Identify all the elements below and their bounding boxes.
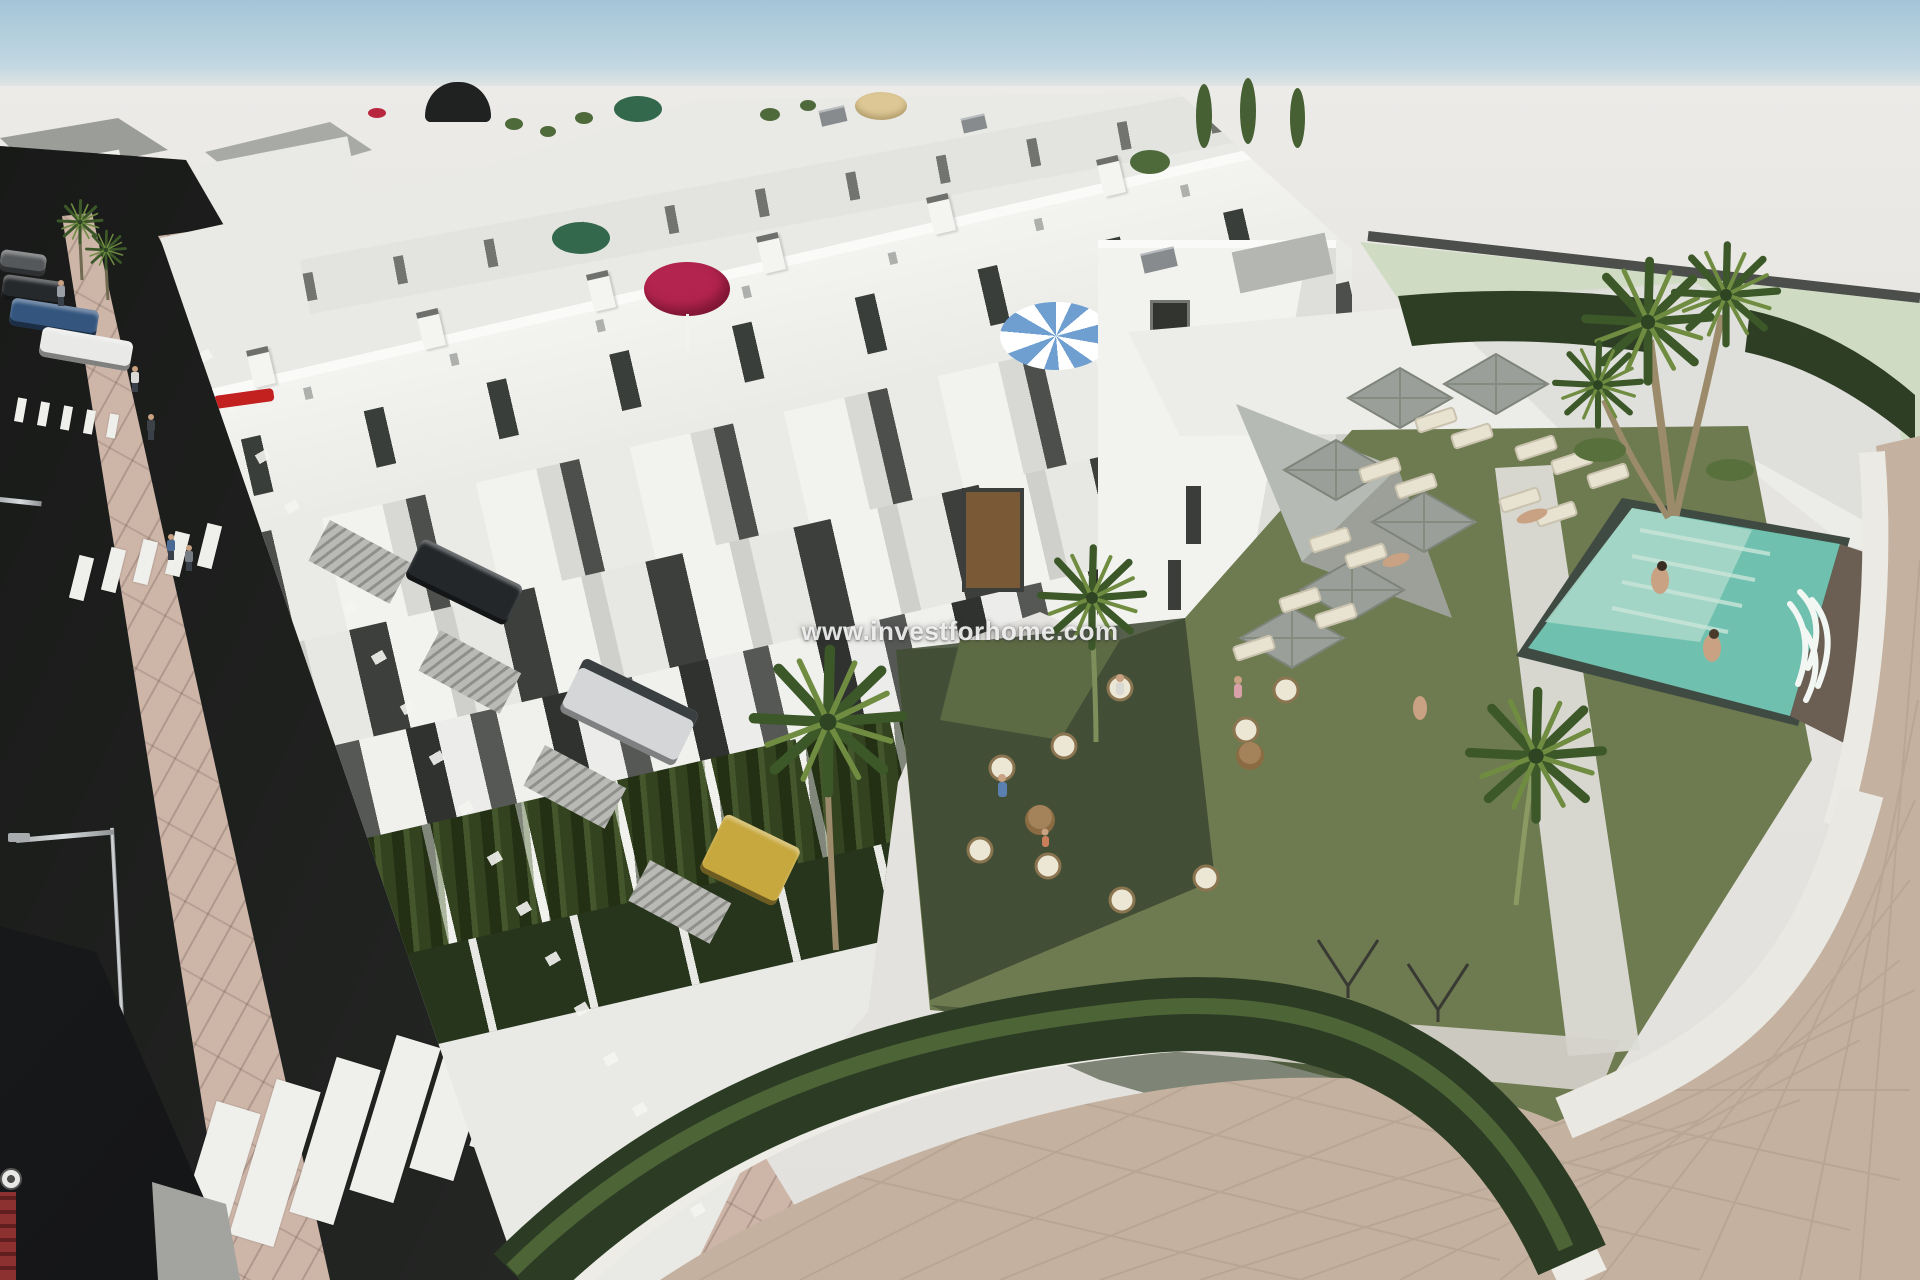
street-palms — [58, 201, 125, 300]
watermark: www.investforhome.com — [801, 616, 1118, 647]
render-canvas: www.investforhome.com — [0, 0, 1920, 1280]
truck-wheel — [0, 1168, 22, 1190]
red-ladder — [0, 1192, 16, 1280]
palm-tree — [754, 650, 902, 950]
